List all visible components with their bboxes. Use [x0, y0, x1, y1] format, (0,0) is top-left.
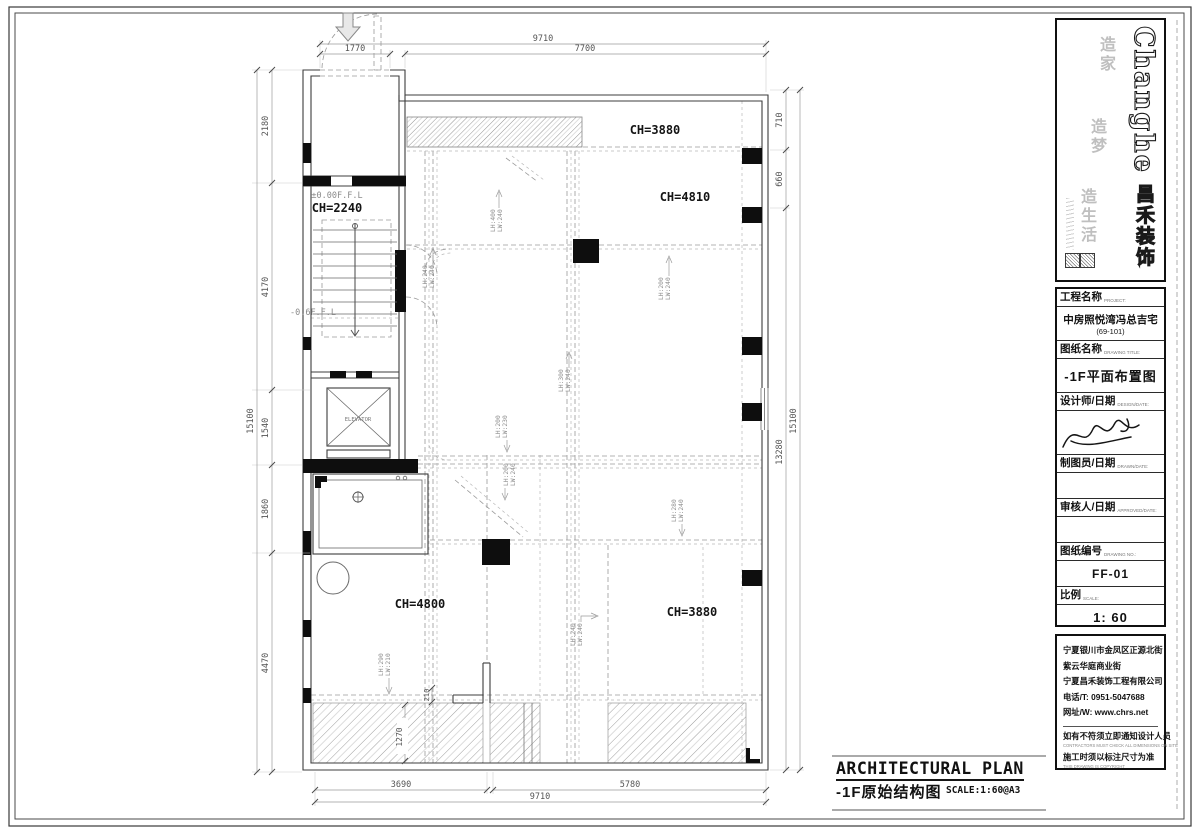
svg-text:LH:300: LH:300: [558, 369, 565, 392]
calligraphy-marks: [1066, 198, 1074, 250]
note-en: CONTRACTORS MUST CHECK ALL DIMENSIONS ON…: [1063, 742, 1158, 749]
field-value-approver: [1057, 517, 1164, 543]
note-en: THIS DRAWING IS COPYRIGHT: [1063, 763, 1158, 770]
titleblock-info-box: 工程名称 PROJECT: 中房照悦湾冯总吉宅 (69-101) 图纸名称 DR…: [1055, 287, 1166, 627]
brand-slogan-1: 造家: [1093, 36, 1117, 74]
field-label-project: 工程名称 PROJECT:: [1057, 289, 1164, 307]
staircase: [313, 220, 397, 337]
svg-text:LW:230: LW:230: [502, 415, 509, 438]
sheet-border: [9, 7, 1191, 826]
entry-door: [322, 13, 381, 70]
ch-label-top: CH=3880: [630, 123, 681, 137]
beam-label: LH:280 LW:240: [671, 499, 685, 522]
field-label-draftsman: 制图员/日期 DRAWN/DATE:: [1057, 455, 1164, 473]
svg-text:LW:240: LW:240: [678, 499, 685, 522]
note-cn: 施工时须以标注尺寸为准: [1063, 752, 1158, 763]
dim-top-overall: 9710: [533, 34, 553, 44]
dim-right-1: 710: [775, 112, 785, 127]
svg-text:LW:240: LW:240: [429, 265, 436, 288]
svg-text:LH:200: LH:200: [503, 463, 510, 486]
svg-text:LH:240: LH:240: [570, 623, 577, 646]
dim-inner-210: 210: [423, 689, 431, 702]
dim-right-2: 660: [775, 171, 785, 186]
ch-label-right: CH=4810: [660, 190, 711, 204]
dimensions: 9710 1770 7700 2180 4170 1540 1860 4470: [246, 34, 804, 806]
dim-right-3: 13280: [775, 439, 785, 465]
seal-stamp-icon: [1065, 253, 1080, 268]
beam-label: LH:200 LW:230: [495, 415, 509, 438]
dim-bottom-2: 5780: [620, 780, 640, 790]
phone-line: 电话/T: 0951-5047688: [1063, 690, 1158, 706]
field-label-designer: 设计师/日期 DESIGN/DATE:: [1057, 393, 1164, 411]
field-label-drawing-title: 图纸名称 DRAWING TITLE:: [1057, 341, 1164, 359]
ch-label-bottom-left: CH=4800: [395, 597, 446, 611]
dim-left-2: 4170: [261, 277, 271, 297]
brand-name-cn: 昌禾装饰: [1133, 184, 1154, 268]
website-line: 网址/W: www.chrs.net: [1063, 705, 1158, 721]
dim-bottom-overall: 9710: [530, 792, 550, 802]
svg-text:LH:240: LH:240: [422, 265, 429, 288]
svg-text:LH:400: LH:400: [490, 209, 497, 232]
pit-room: [313, 474, 428, 554]
company-name: 宁夏昌禾装饰工程有限公司: [1063, 674, 1158, 690]
field-value-scale: 1: 60: [1057, 605, 1164, 629]
plan-title-cn: -1F原始结构图: [836, 784, 942, 801]
level-ground: ±0.00F.F.L: [311, 191, 362, 201]
svg-text:LH:280: LH:280: [671, 499, 678, 522]
beam-label: LH:200 LW:240: [658, 277, 672, 300]
dim-left-4: 1860: [261, 499, 271, 519]
designer-signature: [1057, 411, 1164, 455]
brand-slogan-3: 造生活: [1074, 188, 1098, 245]
dim-inner-1270: 1270: [395, 727, 404, 746]
walls: [303, 70, 770, 770]
svg-text:LW:240: LW:240: [565, 369, 572, 392]
field-label-scale: 比例 SCALE:: [1057, 587, 1164, 605]
field-value-draftsman: [1057, 473, 1164, 499]
plan-title-en: ARCHITECTURAL PLAN: [836, 759, 1024, 781]
elevator: ELEVATOR: [327, 388, 390, 458]
elevator-label: ELEVATOR: [345, 417, 372, 423]
svg-text:LW:210: LW:210: [385, 653, 392, 676]
dim-left-overall: 15100: [246, 408, 256, 434]
address-line: 紫云华庭商业街: [1063, 659, 1158, 675]
note-cn: 如有不符须立即通知设计人员: [1063, 731, 1158, 742]
brand-column: Changhe 昌禾装饰: [1128, 26, 1159, 268]
level-lower: -0.6F.F.L: [290, 308, 336, 318]
field-value-drawing-no: FF-01: [1057, 561, 1164, 587]
brand-name-en: Changhe: [1128, 26, 1159, 174]
drawing-sheet: ELEVATOR CH=3880 CH=4810 ±0.00F.F.L: [0, 0, 1200, 833]
field-value-project: 中房照悦湾冯总吉宅 (69-101): [1057, 307, 1164, 341]
beam-label: LH:240 LW:240: [570, 623, 584, 646]
address-line: 宁夏银川市金凤区正源北街: [1063, 643, 1158, 659]
svg-text:LH:290: LH:290: [378, 653, 385, 676]
svg-text:LH:200: LH:200: [495, 415, 502, 438]
field-label-drawing-no: 图纸编号 DRAWING NO.:: [1057, 543, 1164, 561]
field-value-drawing-title: -1F平面布置图: [1057, 359, 1164, 393]
titleblock-address-box: 宁夏银川市金凤区正源北街 紫云华庭商业街 宁夏昌禾装饰工程有限公司 电话/T: …: [1055, 634, 1166, 770]
plan-title: ARCHITECTURAL PLAN -1F原始结构图 SCALE:1:60@A…: [836, 759, 1048, 802]
plan-scale-note: SCALE:1:60@A3: [946, 785, 1020, 796]
beam-label: LH:400 LW:240: [490, 209, 504, 232]
svg-text:LW:240: LW:240: [510, 463, 517, 486]
ch-label-stair: CH=2240: [312, 201, 363, 215]
dim-left-5: 4470: [261, 653, 271, 673]
beam-label: LH:240 LW:240: [422, 265, 436, 288]
floor-plan: ELEVATOR CH=3880 CH=4810 ±0.00F.F.L: [246, 13, 804, 806]
svg-text:LW:240: LW:240: [665, 277, 672, 300]
beam-labels: LH:400 LW:240 LH:240 LW:240 LH:200 LW:24…: [378, 190, 685, 694]
floor-plan-canvas: ELEVATOR CH=3880 CH=4810 ±0.00F.F.L: [0, 0, 1200, 833]
round-column: [317, 562, 349, 594]
beam-label: LH:200 LW:240: [503, 463, 517, 486]
dim-top-entry: 1770: [345, 44, 365, 54]
signature-icon: [1057, 411, 1157, 455]
brand-slogan-2: 造梦: [1084, 118, 1108, 156]
field-label-approver: 审核人/日期 APPROVED/DATE:: [1057, 499, 1164, 517]
beam-label: LH:290 LW:210: [378, 653, 392, 676]
dim-bottom-1: 3690: [391, 780, 411, 790]
divider: [1063, 726, 1158, 727]
svg-text:LW:240: LW:240: [497, 209, 504, 232]
ch-label-bottom-right: CH=3880: [667, 605, 718, 619]
beam-label: LH:300 LW:240: [558, 369, 572, 392]
entry-arrow-icon: [336, 13, 360, 41]
titleblock-logo-box: Changhe 昌禾装饰 造家 造梦 造生活: [1055, 18, 1166, 282]
dim-top-main: 7700: [575, 44, 595, 54]
seal-stamp-icon: [1080, 253, 1095, 268]
dim-left-1: 2180: [261, 116, 271, 136]
columns: [303, 143, 762, 763]
dim-right-overall: 15100: [789, 408, 799, 434]
svg-text:LW:240: LW:240: [577, 623, 584, 646]
svg-text:LH:200: LH:200: [658, 277, 665, 300]
dim-left-3: 1540: [261, 418, 271, 438]
